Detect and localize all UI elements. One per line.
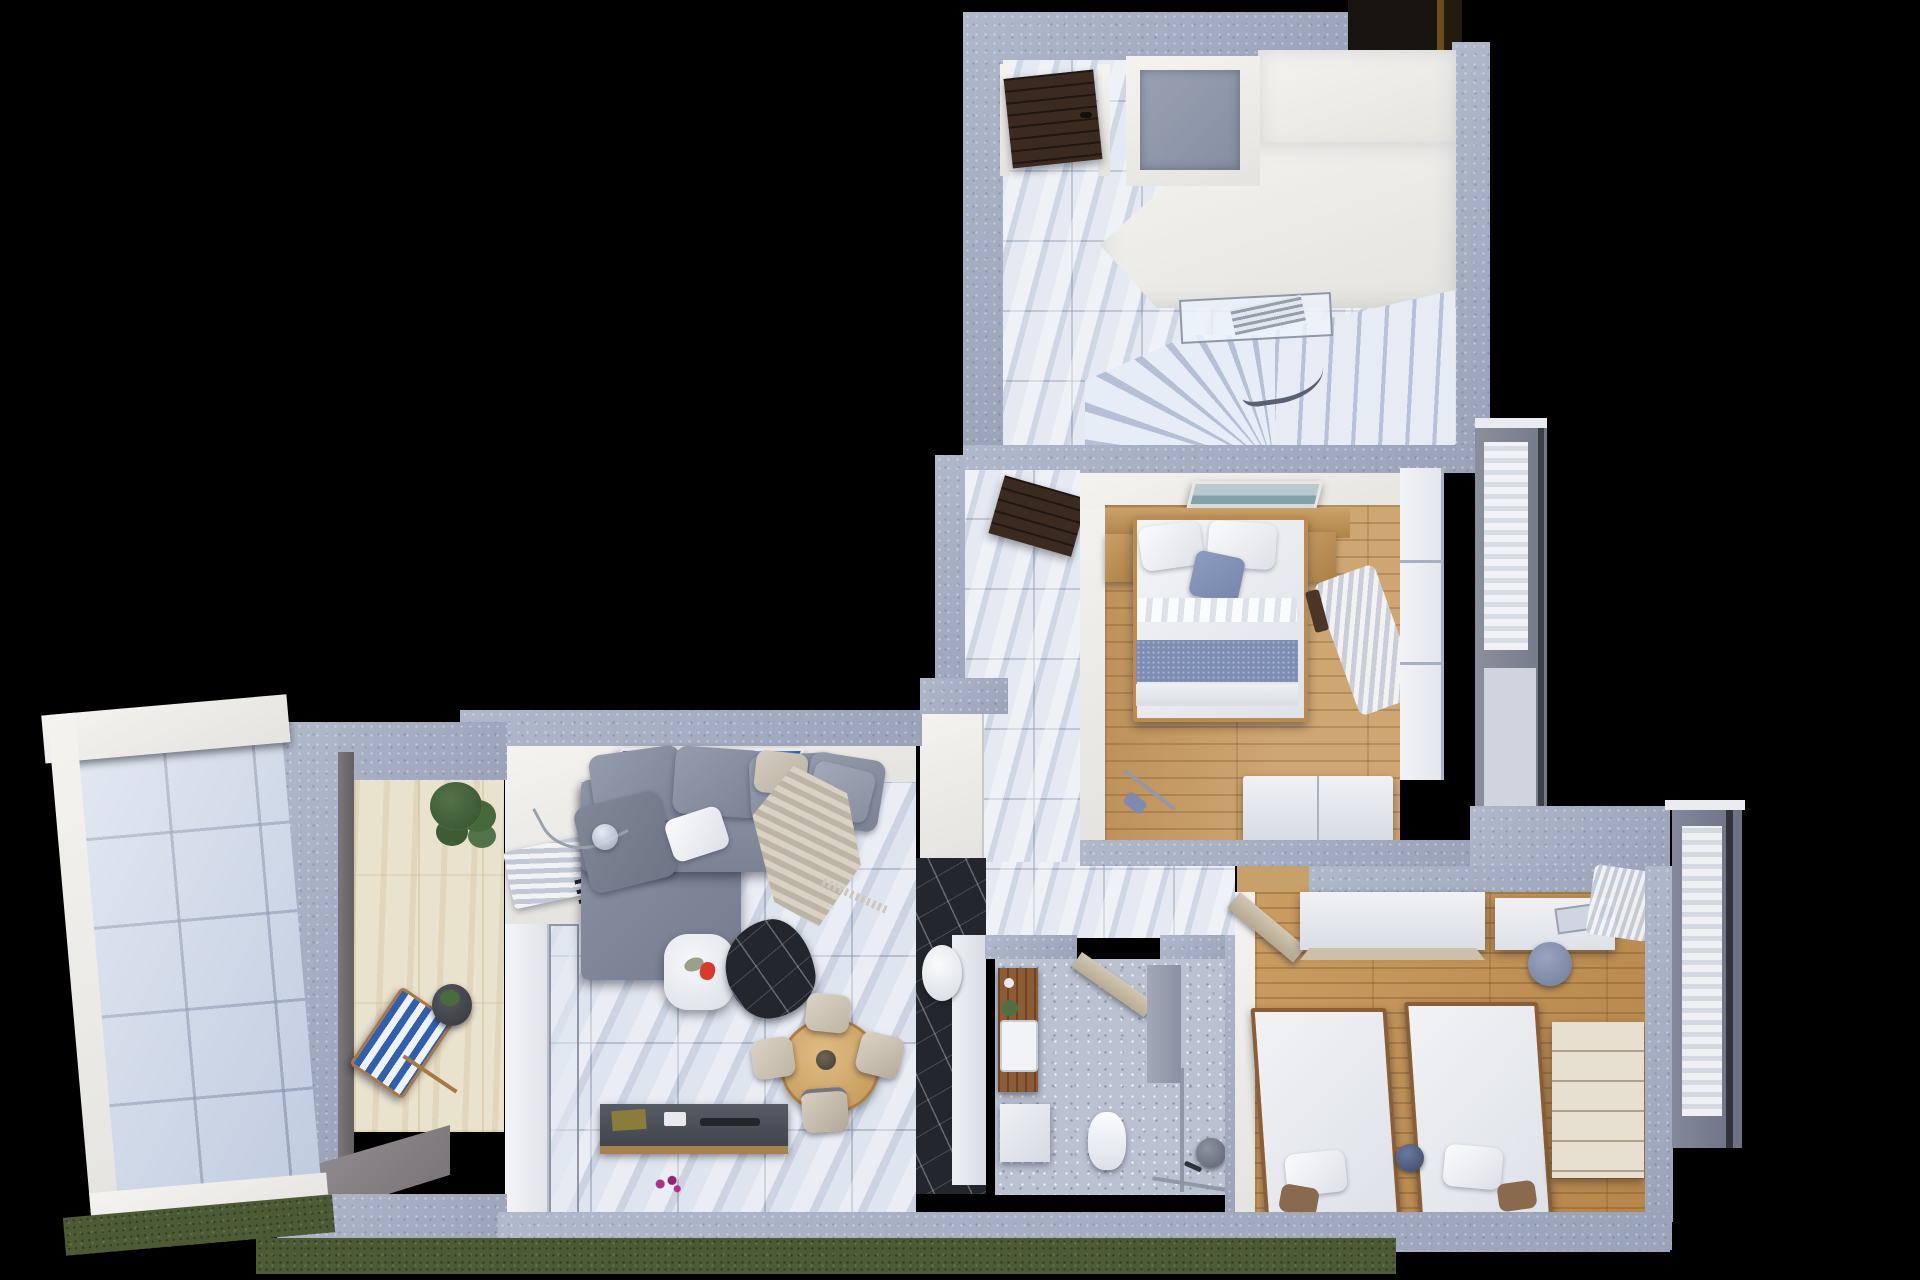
master-left-wall (1080, 473, 1105, 850)
shower-glass-panel (1180, 1068, 1184, 1192)
sheet-fold (1137, 598, 1297, 622)
dining-chair-west (749, 1035, 796, 1080)
dining-chair-north (804, 992, 852, 1034)
bath-top-wall-right (1160, 935, 1235, 959)
entry-door (1004, 70, 1103, 169)
storage-room-upper (1258, 50, 1456, 154)
mattress-foot (1136, 684, 1298, 706)
fareast-glazing-line (1726, 810, 1733, 1148)
apartment-floorplan-render (0, 0, 1920, 1280)
bath-top-wall-left (985, 935, 1077, 959)
vanity-plant (1002, 1000, 1018, 1016)
toy-ball (1396, 1144, 1424, 1172)
master-wardrobe-seam (1317, 776, 1319, 842)
topwing-crosswall (963, 445, 1475, 473)
window-mullion-1 (1400, 560, 1444, 563)
kids-left-wall (1235, 892, 1255, 1222)
kids-corner-wall (1470, 806, 1670, 868)
kids-dresser (1552, 1022, 1644, 1178)
lamp-glass-globe (592, 824, 618, 850)
sliding-door-glass (549, 924, 579, 1220)
topwing-left-wall-upper (963, 12, 1003, 470)
sideboard-deco (664, 1112, 686, 1126)
sideboard-wood-trim (600, 1146, 788, 1154)
hallway-wide (965, 862, 1235, 938)
kids-bed-right-pillow (1442, 1144, 1503, 1191)
side-terrace (46, 681, 326, 1259)
sideboard-books (611, 1109, 646, 1131)
master-bottom-wall (1080, 840, 1475, 866)
shower-stool (1196, 1138, 1226, 1168)
fareast-curtain-strip (1682, 826, 1722, 1116)
toilet (1088, 1112, 1126, 1170)
kids-door-threshold (1237, 866, 1309, 892)
balcony-inner-wall (338, 752, 354, 1172)
sliding-door-frame (505, 924, 549, 1216)
balcony-shrub (430, 782, 482, 830)
utility-shaft (1140, 70, 1240, 170)
desk-chair (1528, 942, 1572, 986)
kids-bed-left (1250, 1008, 1402, 1230)
denim-throw (1136, 640, 1298, 682)
entry-door-handle (1080, 112, 1092, 118)
kids-wardrobe-base (1300, 948, 1485, 960)
window-mullion-2 (1400, 662, 1444, 665)
east-glazing-line (1538, 428, 1544, 828)
shower-partition (1147, 965, 1181, 1083)
blue-accent-cushion (1188, 549, 1246, 604)
dining-chair-south (801, 1086, 850, 1133)
living-top-wall (460, 710, 922, 746)
vanity-bottle (1004, 978, 1014, 988)
bath-sink (1000, 1020, 1038, 1072)
fareast-sill (1665, 800, 1745, 810)
hall-junction-wall (920, 678, 1008, 714)
sideboard-soundbar (700, 1118, 760, 1126)
grass-strip (256, 1238, 1396, 1274)
kids-wardrobe (1300, 892, 1485, 950)
topwing-right-wall (1452, 42, 1490, 450)
wall-above-column (920, 705, 984, 860)
east-lower-strip (1484, 668, 1536, 814)
east-curtain-strip (1484, 442, 1528, 650)
kids-bed-right-cushion (1496, 1179, 1538, 1212)
kids-right-outer (1645, 866, 1673, 1222)
dining-vase (816, 1050, 836, 1070)
purple-floor-flower (650, 1172, 684, 1196)
side-table-plant (440, 990, 460, 1006)
terrace-tiles (77, 743, 320, 1193)
bath-base-cabinet (1000, 1104, 1050, 1162)
white-basin-oval (922, 945, 962, 1001)
french-window (1400, 468, 1444, 780)
